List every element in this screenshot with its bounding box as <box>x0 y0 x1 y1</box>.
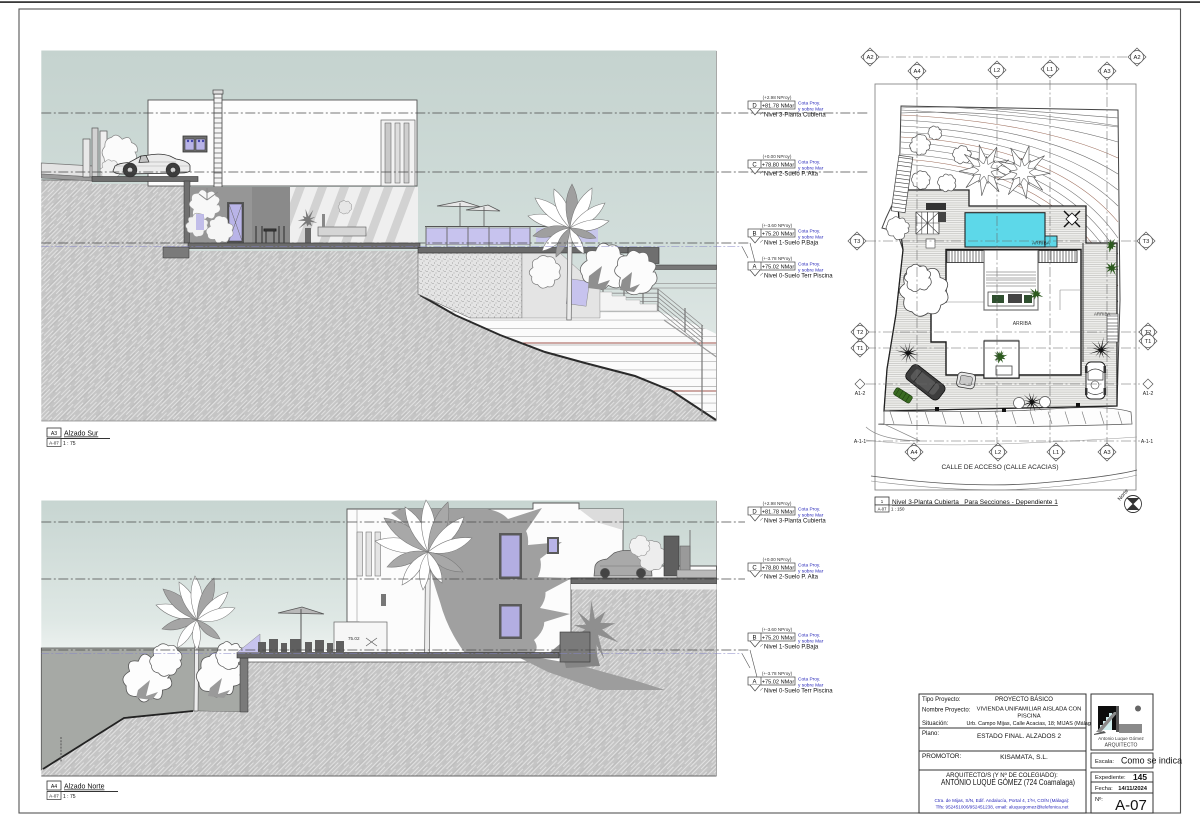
svg-text:Antonio Luque Gómez: Antonio Luque Gómez <box>1098 736 1144 741</box>
svg-text:A1-2: A1-2 <box>855 391 866 397</box>
svg-text:Alzado Sur: Alzado Sur <box>64 431 99 438</box>
svg-text:A4: A4 <box>913 69 921 75</box>
svg-text:L2: L2 <box>994 68 1000 74</box>
svg-text:L1: L1 <box>1047 67 1053 73</box>
svg-text:A-07: A-07 <box>49 794 59 799</box>
svg-text:Nivel 1-Suelo P.Baja: Nivel 1-Suelo P.Baja <box>764 241 819 247</box>
svg-text:1 : 75: 1 : 75 <box>63 441 76 447</box>
svg-text:Expediente:: Expediente: <box>1095 775 1126 781</box>
svg-text:Nivel 0-Suelo Terr Piscina: Nivel 0-Suelo Terr Piscina <box>764 274 833 280</box>
svg-text:C: C <box>752 162 757 168</box>
svg-text:y sobre Mar: y sobre Mar <box>798 639 824 645</box>
svg-text:+75.02 NMar: +75.02 NMar <box>762 679 795 685</box>
svg-text:Nombre Proyecto:: Nombre Proyecto: <box>922 708 971 714</box>
svg-text:A-07: A-07 <box>878 507 888 512</box>
svg-text:145: 145 <box>1133 772 1147 782</box>
svg-text:ANTONIO LUQUE GÓMEZ (724 Coama: ANTONIO LUQUE GÓMEZ (724 Coamalaga) <box>941 778 1075 787</box>
svg-text:A: A <box>752 679 756 685</box>
svg-text:PROMOTOR:: PROMOTOR: <box>922 753 962 760</box>
svg-text:Nivel 0-Suelo Terr Piscina: Nivel 0-Suelo Terr Piscina <box>764 689 833 695</box>
svg-text:+75.02 NMar: +75.02 NMar <box>762 264 795 270</box>
svg-text:Alzado Norte: Alzado Norte <box>64 784 105 791</box>
svg-text:(+-3.78 NProy): (+-3.78 NProy) <box>762 256 793 261</box>
svg-text:Cota Proy.: Cota Proy. <box>798 677 820 683</box>
svg-text:75.02: 75.02 <box>348 636 360 641</box>
svg-text:Cota Proy.: Cota Proy. <box>798 507 820 513</box>
svg-text:VIVIENDA UNIFAMILIAR AISLADA C: VIVIENDA UNIFAMILIAR AISLADA CON <box>977 707 1082 713</box>
svg-text:(+-3.60 NProy): (+-3.60 NProy) <box>762 223 793 228</box>
svg-text:Situación:: Situación: <box>922 721 949 727</box>
svg-text:Nivel 3-Planta Cubierta: Nivel 3-Planta Cubierta <box>764 519 826 525</box>
svg-text:Fecha:: Fecha: <box>1095 786 1113 792</box>
svg-text:Escala:: Escala: <box>1095 759 1114 765</box>
svg-text:Nivel 2-Suelo P. Alta: Nivel 2-Suelo P. Alta <box>764 575 819 581</box>
svg-text:D: D <box>752 103 757 109</box>
svg-text:y sobre Mar: y sobre Mar <box>798 683 824 689</box>
svg-text:14/11/2024: 14/11/2024 <box>1118 786 1147 792</box>
svg-text:T1: T1 <box>1145 339 1152 345</box>
svg-text:PROYECTO BÁSICO: PROYECTO BÁSICO <box>995 696 1053 703</box>
svg-text:L2: L2 <box>995 450 1001 456</box>
svg-text:Tipo Proyecto:: Tipo Proyecto: <box>922 697 961 703</box>
svg-text:+78.80 NMar: +78.80 NMar <box>762 565 795 571</box>
svg-text:Cota Proy.: Cota Proy. <box>798 229 820 235</box>
svg-text:ESTADO FINAL. ALZADOS 2: ESTADO FINAL. ALZADOS 2 <box>977 733 1061 740</box>
svg-text:y sobre Mar: y sobre Mar <box>798 166 824 172</box>
svg-text:T3: T3 <box>1143 239 1150 245</box>
svg-text:ARQUITECTO: ARQUITECTO <box>1105 743 1138 749</box>
svg-text:Cota Proy.: Cota Proy. <box>798 160 820 166</box>
svg-text:PISCINA: PISCINA <box>1017 714 1040 720</box>
svg-text:Nivel 3-Planta Cubierta: Nivel 3-Planta Cubierta <box>764 113 826 119</box>
svg-text:Cota Proy.: Cota Proy. <box>798 563 820 569</box>
svg-text:A: A <box>752 264 756 270</box>
svg-text:Cota Proy.: Cota Proy. <box>798 262 820 268</box>
svg-text:B: B <box>752 635 756 641</box>
svg-text:A2: A2 <box>866 55 873 61</box>
svg-text:ARRIBA: ARRIBA <box>1013 321 1032 327</box>
svg-text:+75.20 NMar: +75.20 NMar <box>762 635 795 641</box>
svg-text:A-1-1: A-1-1 <box>854 439 866 445</box>
svg-text:ARRIBA: ARRIBA <box>1032 241 1051 247</box>
svg-text:CALLE DE ACCESO (CALLE ACACIAS: CALLE DE ACCESO (CALLE ACACIAS) <box>941 464 1058 471</box>
svg-text:Nivel 1-Suelo P.Baja: Nivel 1-Suelo P.Baja <box>764 645 819 651</box>
svg-text:A3: A3 <box>51 431 57 437</box>
svg-text:(+0.00 NProy): (+0.00 NProy) <box>763 154 792 159</box>
svg-text:T2: T2 <box>857 330 864 336</box>
svg-text:ARRIBA: ARRIBA <box>1094 312 1110 317</box>
svg-text:Cota Proy.: Cota Proy. <box>798 633 820 639</box>
svg-text:(+0.00 NProy): (+0.00 NProy) <box>763 557 792 562</box>
svg-text:(+2.98 NProy): (+2.98 NProy) <box>763 95 792 100</box>
svg-text:Ctra. de Mijas, S/N, Edif. And: Ctra. de Mijas, S/N, Edif. Andalucía, Po… <box>935 797 1070 803</box>
svg-text:+81.78 NMar: +81.78 NMar <box>762 509 795 515</box>
svg-text:A2: A2 <box>1133 55 1140 61</box>
svg-text:y sobre Mar: y sobre Mar <box>798 569 824 575</box>
svg-text:1 : 150: 1 : 150 <box>891 507 905 512</box>
svg-text:y sobre Mar: y sobre Mar <box>798 513 824 519</box>
svg-text:+75.20 NMar: +75.20 NMar <box>762 231 795 237</box>
svg-text:(+2.98 NProy): (+2.98 NProy) <box>763 501 792 506</box>
svg-text:A-07: A-07 <box>49 441 59 446</box>
svg-text:y sobre Mar: y sobre Mar <box>798 235 824 241</box>
svg-text:T1: T1 <box>857 346 864 352</box>
svg-text:C: C <box>752 565 757 571</box>
svg-text:A3: A3 <box>1103 450 1110 456</box>
svg-text:Plano:: Plano: <box>922 731 939 737</box>
svg-text:Nº:: Nº: <box>1095 796 1103 803</box>
svg-text:Como se indica: Como se indica <box>1121 756 1182 766</box>
svg-text:Nivel 2-Suelo P. Alta: Nivel 2-Suelo P. Alta <box>764 172 819 178</box>
svg-text:Urb. Campo Mijas, Calle Acacia: Urb. Campo Mijas, Calle Acacias, 18; MIJ… <box>966 721 1095 727</box>
svg-text:Cota Proy.: Cota Proy. <box>798 101 820 107</box>
svg-text:A4: A4 <box>910 450 918 456</box>
svg-text:+78.80 NMar: +78.80 NMar <box>762 162 795 168</box>
svg-text:1 : 75: 1 : 75 <box>63 794 76 800</box>
svg-text:A1-2: A1-2 <box>1143 391 1154 397</box>
svg-text:y sobre Mar: y sobre Mar <box>798 107 824 113</box>
svg-text:D: D <box>752 509 757 515</box>
svg-text:KISAMATA, S.L.: KISAMATA, S.L. <box>1000 754 1048 761</box>
svg-text:T3: T3 <box>854 239 861 245</box>
svg-text:(+-3.60 NProy): (+-3.60 NProy) <box>762 627 793 632</box>
svg-text:A3: A3 <box>1103 69 1110 75</box>
svg-text:(+-3.78 NProy): (+-3.78 NProy) <box>762 671 793 676</box>
svg-text:B: B <box>752 231 756 237</box>
svg-text:y sobre Mar: y sobre Mar <box>798 268 824 274</box>
svg-text:A-07: A-07 <box>1115 797 1147 814</box>
svg-text:Tlfs: 952451006/952451238, ema: Tlfs: 952451006/952451238, email: aluque… <box>936 805 1070 810</box>
svg-text:+81.78 NMar: +81.78 NMar <box>762 103 795 109</box>
svg-text:A-1-1: A-1-1 <box>1141 439 1153 445</box>
svg-text:A4: A4 <box>51 784 57 790</box>
svg-text:L1: L1 <box>1053 450 1059 456</box>
